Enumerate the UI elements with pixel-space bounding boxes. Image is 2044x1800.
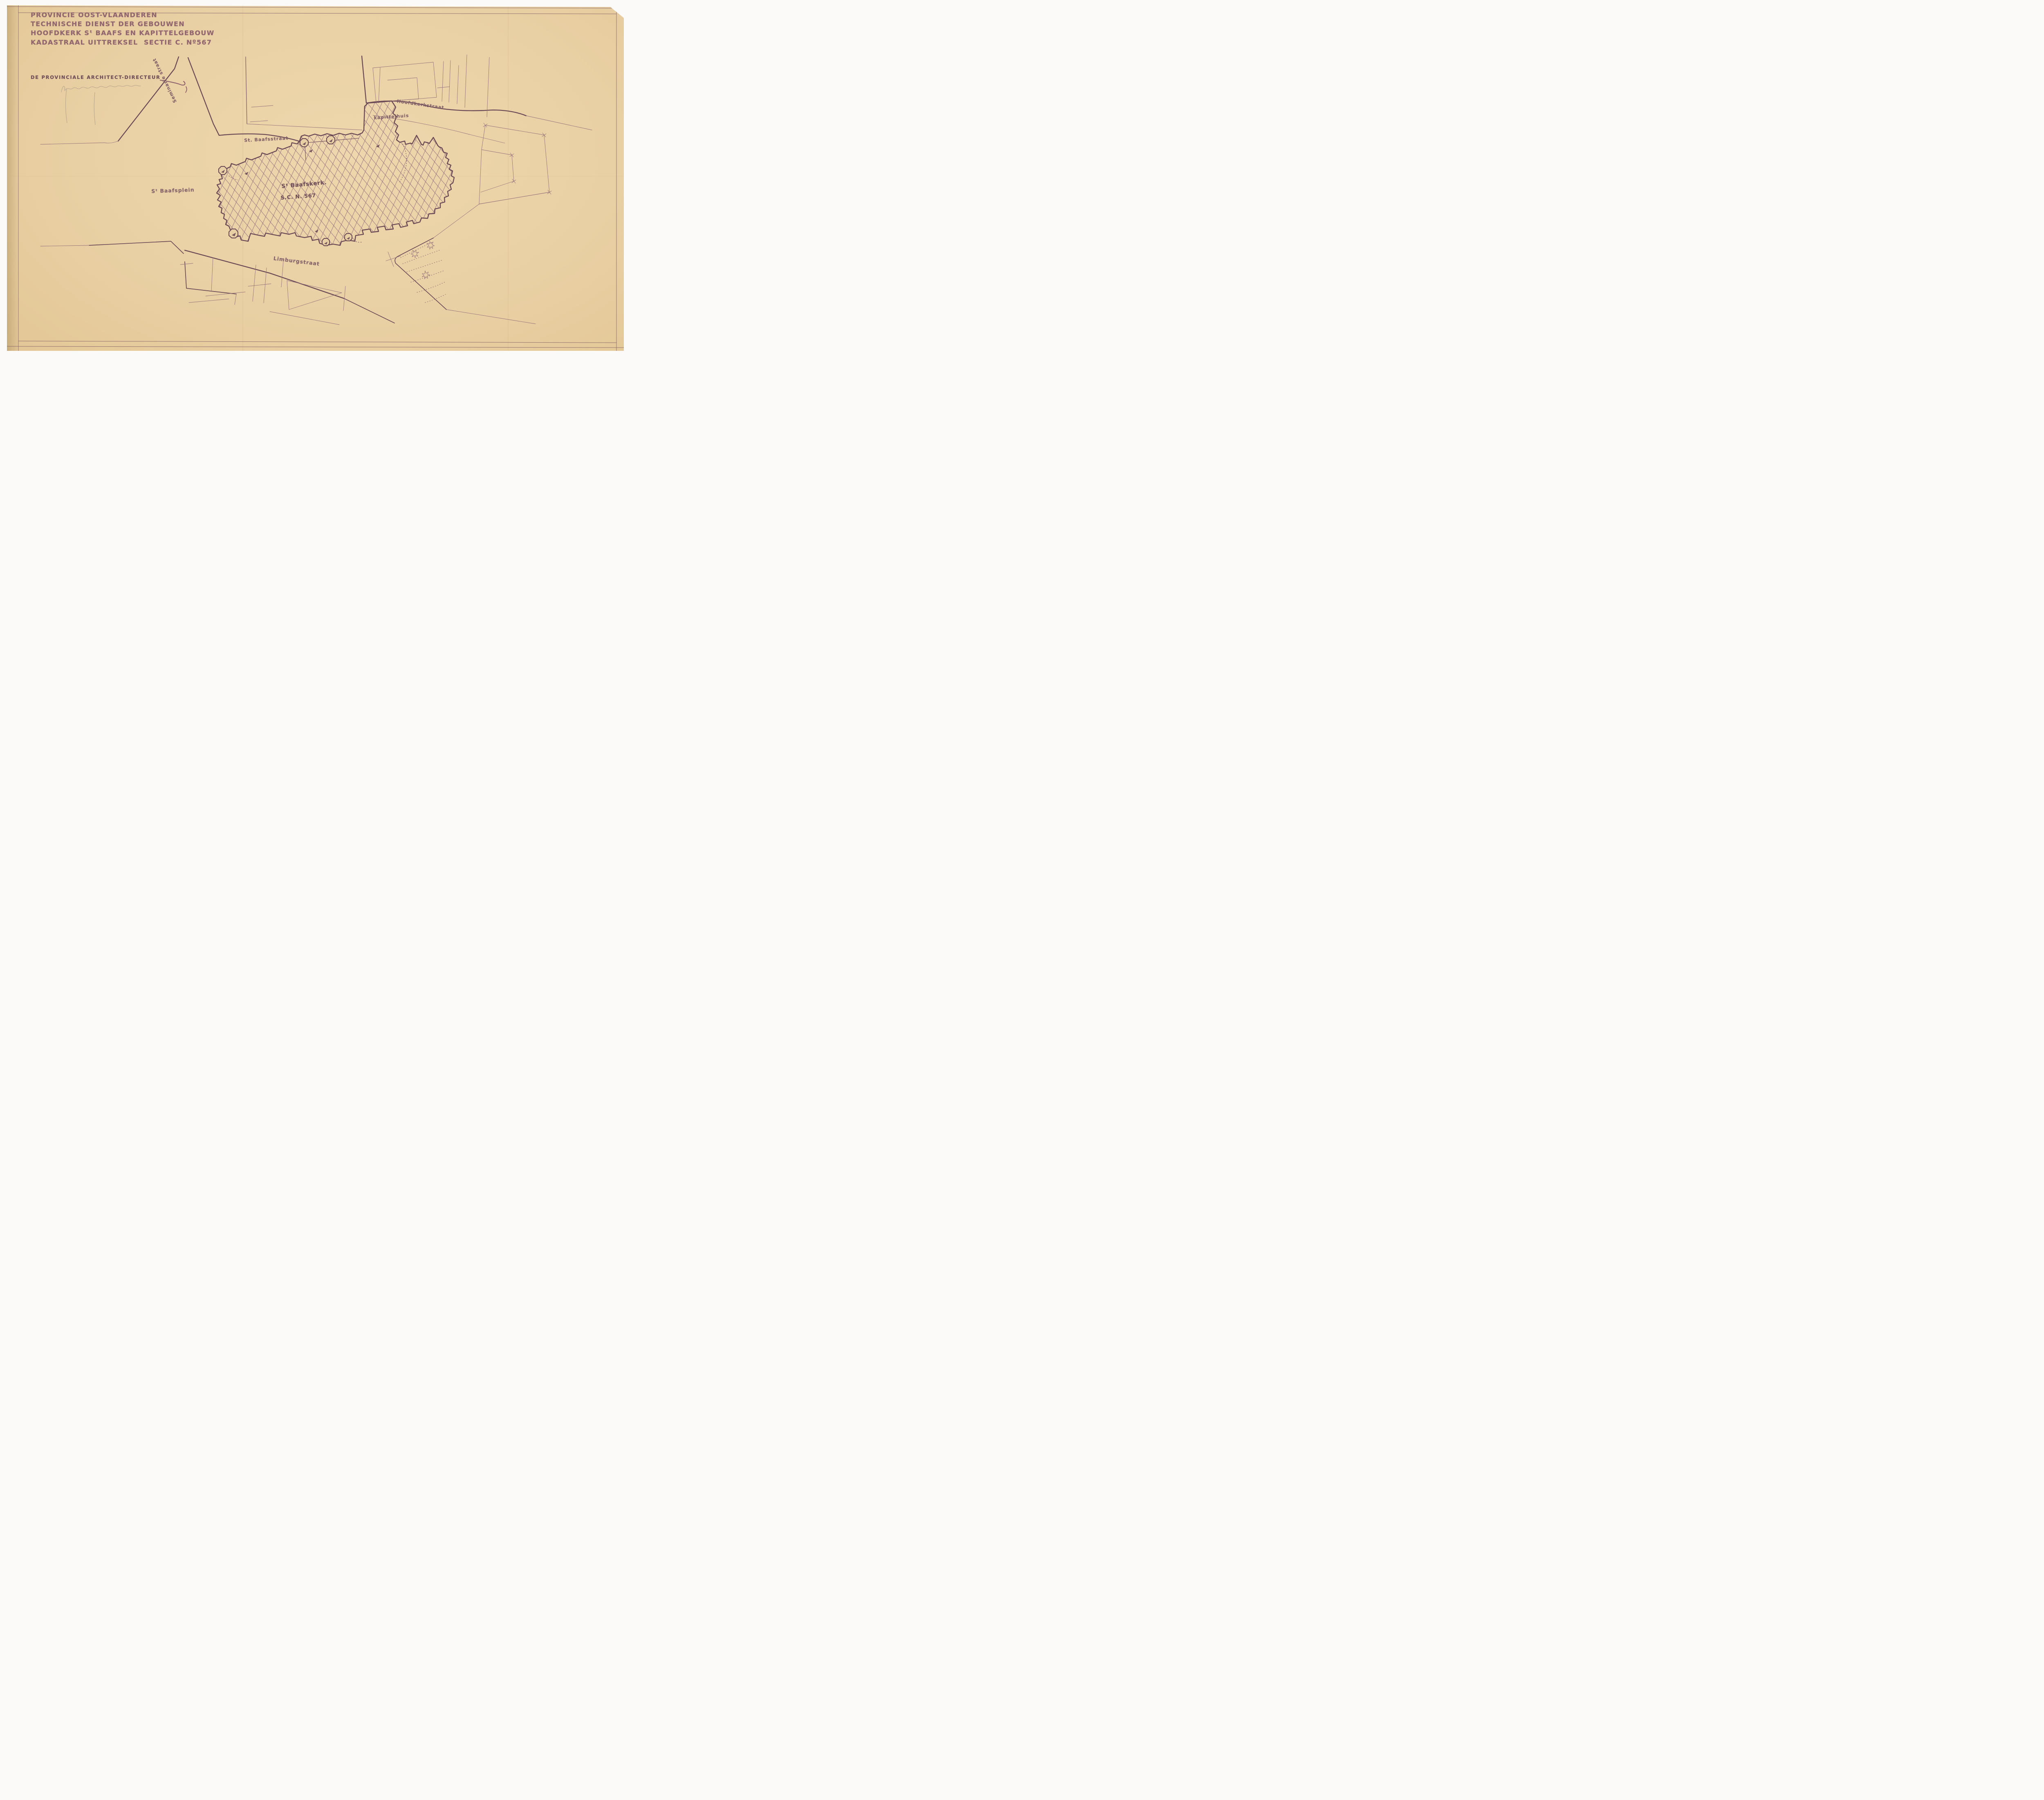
cadastral-sheet: PROVINCIE OOST-VLAANDEREN TECHNISCHE DIE…: [0, 0, 631, 368]
signatory-title: DE PROVINCIALE ARCHITECT-DIRECTEUR: [31, 74, 161, 80]
turret-north-2: [327, 136, 335, 144]
church-footprint: [217, 101, 454, 245]
title-extract: KADASTRAAL UITTREKSEL: [31, 38, 138, 46]
turret-south-1: [322, 238, 329, 246]
leaf-ornament: [426, 240, 435, 249]
turret-nw: [219, 166, 227, 175]
pencil-signature: [61, 85, 141, 92]
title-section: SECTIE C. Nº567: [144, 38, 212, 46]
scanned-cadastral-map: PROVINCIE OOST-VLAANDEREN TECHNISCHE DIE…: [0, 0, 631, 368]
title-province: PROVINCIE OOST-VLAANDEREN: [31, 11, 157, 19]
leaf-ornament: [421, 269, 431, 280]
turret-sw: [229, 229, 238, 238]
title-service: TECHNISCHE DIENST DER GEBOUWEN: [31, 20, 185, 28]
church-outline: [217, 101, 454, 245]
flourish-comma: [186, 87, 187, 92]
turret-south-2: [345, 233, 352, 241]
parcel-lines-south: [180, 258, 345, 325]
leaf-ornament: [410, 249, 419, 259]
turret-north-1: [300, 139, 308, 147]
garden-wedge: [386, 238, 536, 324]
title-building: HOOFDKERK Sᵗ BAAFS EN KAPITTELGEBOUW: [31, 29, 215, 37]
